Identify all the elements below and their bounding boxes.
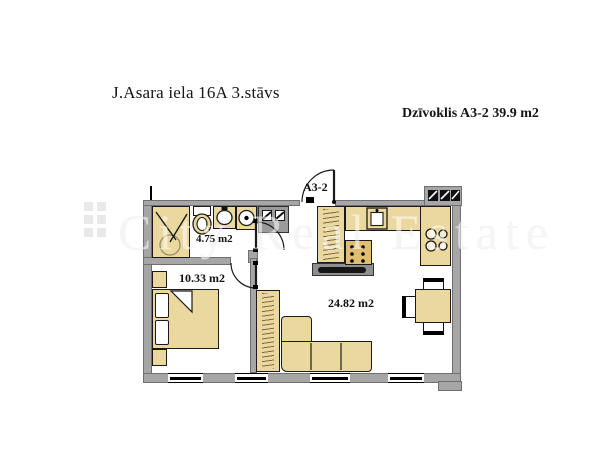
bathroom-area-label: 4.75 m2 (196, 233, 233, 245)
kitchen-counter-right (420, 206, 451, 266)
apartment-label: Dzīvoklis A3-2 39.9 m2 (402, 106, 572, 122)
dining-table (415, 289, 451, 323)
window (310, 373, 350, 383)
wall-right (452, 200, 461, 383)
sofa-chaise (281, 316, 312, 344)
pillow (155, 293, 169, 318)
entrance-threshold (306, 197, 314, 203)
kitchen-cabinet (345, 240, 372, 265)
entrance-door-label: A3-2 (303, 180, 328, 195)
washing-machine (236, 206, 257, 230)
entrance-wardrobe (317, 206, 345, 263)
window (168, 373, 203, 383)
watermark-logo (84, 202, 110, 242)
wardrobe-hatch (323, 209, 339, 260)
vent-cell (440, 190, 450, 201)
vent-cell (428, 190, 438, 201)
floor-plan-page: City Real Estate J.Asara iela 16A 3.stāv… (0, 0, 605, 464)
shower (152, 206, 190, 258)
window (388, 373, 424, 383)
bathroom-sink-counter (213, 206, 236, 229)
utility-cell (275, 210, 285, 221)
utility-cell (262, 210, 272, 221)
window (235, 373, 268, 383)
wall-bottom-right-step (438, 381, 462, 391)
wall-left (143, 200, 152, 383)
wardrobe-hatch (262, 293, 274, 369)
bedroom-area-label: 10.33 m2 (179, 271, 225, 286)
kitchen-counter-top (345, 206, 424, 231)
nightstand (152, 271, 167, 288)
toilet (193, 214, 211, 234)
pillow (155, 320, 169, 345)
wall-bathroom-bottom (143, 257, 231, 265)
wall-end-tick (150, 186, 152, 200)
page-title: J.Asara iela 16A 3.stāvs (112, 83, 280, 103)
bedroom-wardrobe (256, 290, 280, 372)
nightstand (152, 349, 167, 366)
toilet-tank (193, 206, 211, 216)
tv (318, 267, 366, 273)
sofa-seat (281, 341, 372, 372)
living-room-area-label: 24.82 m2 (328, 296, 374, 311)
vent-cell (451, 190, 460, 201)
